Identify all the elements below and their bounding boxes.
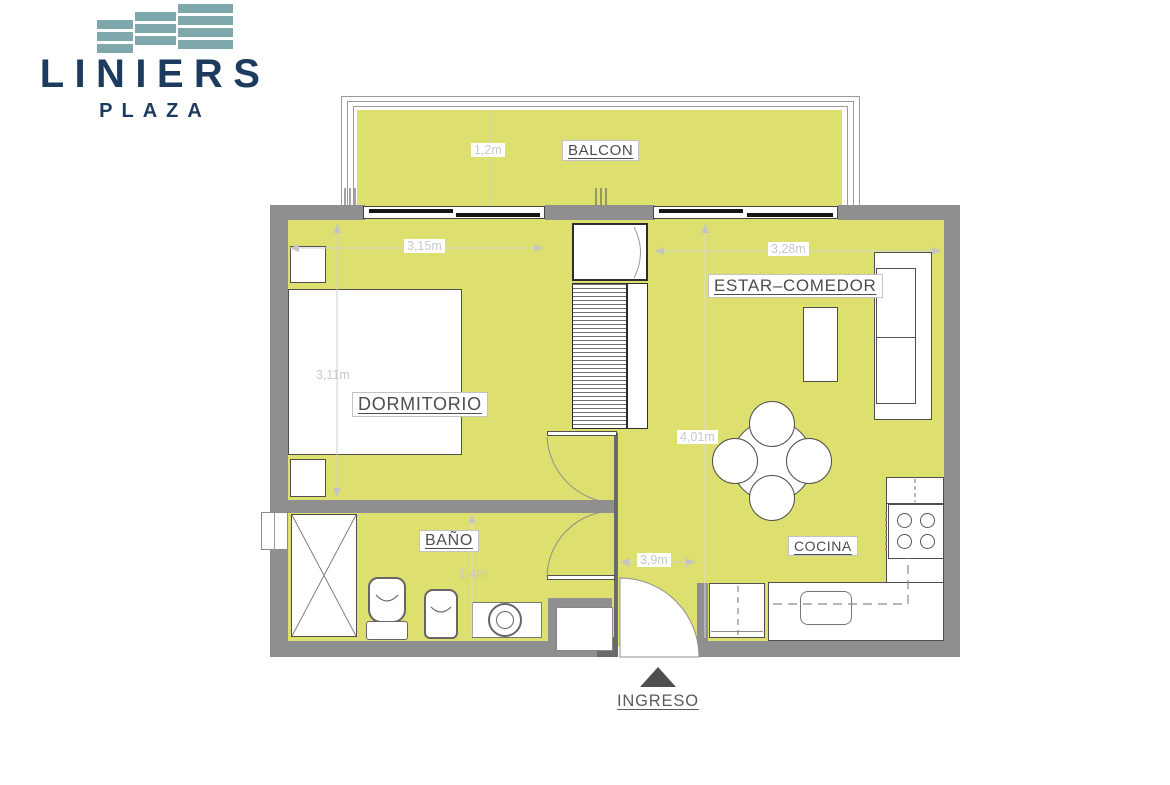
vanity-sink-drain — [496, 611, 514, 629]
toilet-tank — [366, 621, 408, 640]
sofa-seat-divider — [877, 337, 915, 338]
dim-balcony-depth: 1,2m — [471, 143, 505, 157]
bathroom-window — [261, 512, 288, 550]
burner-icon — [920, 513, 935, 528]
page: LINIERS PLAZA — [0, 0, 1170, 785]
bidet — [424, 589, 458, 639]
toilet — [368, 577, 406, 623]
burner-icon — [897, 534, 912, 549]
wall-bathroom-top — [288, 500, 614, 513]
wall-top-middle — [545, 205, 655, 220]
living-window — [653, 206, 838, 219]
room-label-bedroom: DORMITORIO — [352, 392, 488, 417]
window-sash-icon — [659, 209, 743, 213]
burner-icon — [920, 534, 935, 549]
nightstand — [290, 459, 326, 497]
dim-bathroom-depth: 1,4m — [456, 567, 490, 581]
kitchen-counter-bottom — [768, 582, 944, 641]
bedroom-window — [363, 206, 545, 219]
window-sash-icon — [747, 213, 833, 217]
wall-hall-partition — [614, 433, 618, 657]
floor-plan: BALCON DORMITORIO ESTAR–COMEDOR BAÑO COC… — [0, 0, 1170, 785]
room-label-entrance: INGRESO — [617, 692, 699, 711]
wall-kitchen-stub — [697, 583, 708, 641]
nightstand — [290, 246, 326, 283]
room-label-kitchen: COCINA — [788, 536, 858, 556]
dining-chair — [749, 401, 795, 447]
window-sash-icon — [369, 209, 453, 213]
bathroom-door-leaf — [547, 575, 615, 580]
wall-laundry-top — [548, 598, 612, 607]
dim-living-width: 3,28m — [768, 242, 809, 256]
fridge-base-line — [711, 631, 763, 632]
dining-chair — [786, 438, 832, 484]
wall-right — [944, 205, 960, 657]
room-label-living: ESTAR–COMEDOR — [708, 274, 883, 298]
wardrobe-side-panel — [627, 283, 648, 429]
laundry-closet — [556, 607, 613, 651]
fridge — [709, 583, 765, 638]
wardrobe-closet — [572, 283, 627, 429]
dim-living-depth: 4,01m — [677, 430, 718, 444]
dim-bedroom-width: 3,15m — [404, 239, 445, 253]
wardrobe-cabinet — [572, 223, 648, 281]
window-sash-icon — [456, 213, 540, 217]
shower — [291, 514, 357, 637]
wall-left — [270, 205, 288, 657]
stove — [888, 504, 944, 559]
bedroom-door-leaf — [547, 431, 617, 436]
wall-bottom-right — [697, 641, 960, 657]
kitchen-sink — [800, 591, 852, 625]
wall-top-right — [838, 205, 960, 220]
burner-icon — [897, 513, 912, 528]
room-label-bathroom: BAÑO — [419, 530, 479, 552]
room-label-balcony: BALCON — [562, 140, 639, 161]
dining-chair — [749, 475, 795, 521]
kitchen-upper-cabinet — [886, 477, 944, 504]
ingreso-arrow-icon — [640, 667, 676, 687]
dim-entrance-width: 3,9m — [637, 553, 671, 567]
coffee-table — [803, 307, 838, 382]
dim-bedroom-depth: 3,11m — [313, 368, 353, 382]
window-mullion — [274, 513, 275, 551]
dining-chair — [712, 438, 758, 484]
